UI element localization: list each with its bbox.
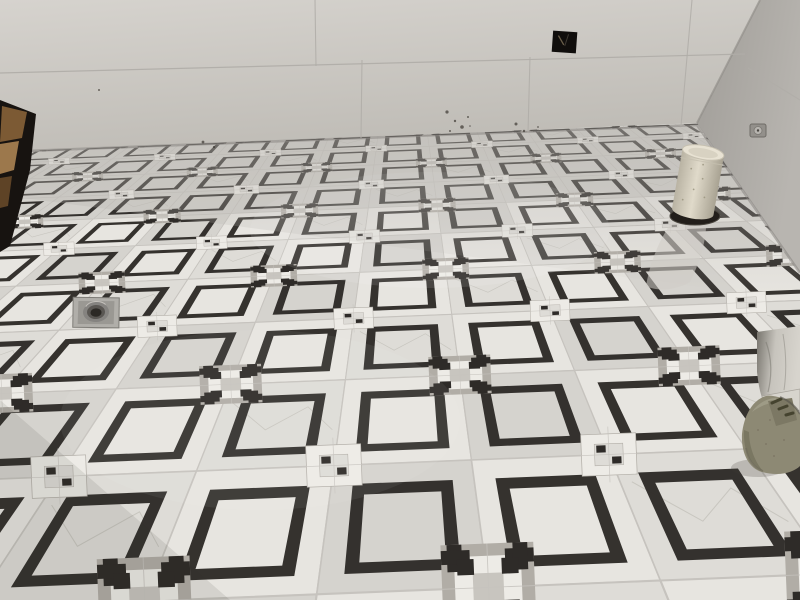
suede-speck [765, 443, 767, 445]
wall-splatter-speck [537, 126, 539, 128]
wall-splatter-speck [515, 123, 518, 126]
boot-lace [786, 413, 793, 415]
suede-speck [769, 419, 771, 421]
tile-corner-motif [657, 345, 720, 386]
wall-splatter-speck [467, 116, 469, 118]
wall-splatter-speck [98, 89, 100, 91]
suede-speck [773, 455, 775, 457]
tile-corner-motif [250, 264, 297, 288]
suede-speck [757, 429, 759, 431]
floor-glare [60, 330, 460, 510]
wall-junction-box-hole [551, 30, 577, 54]
bathroom-photo [0, 0, 800, 600]
wall-splatter-speck [445, 110, 448, 113]
wall-splatter-speck [523, 130, 525, 132]
wall-splatter-speck [469, 125, 471, 127]
wall-splatter-speck [460, 125, 464, 129]
wall-splatter-speck [213, 146, 215, 148]
wall-outlet-box [750, 124, 766, 137]
suede-speck [783, 439, 785, 441]
wall-splatter-speck [202, 141, 205, 144]
tile-corner-motif [78, 271, 125, 295]
floor-drain [71, 295, 121, 330]
tile-corner-motif [440, 542, 536, 600]
wall-splatter-speck [454, 120, 456, 122]
wall-splatter-speck [449, 130, 451, 132]
bathroom-scene [0, 0, 800, 600]
tile-corner-motif [784, 528, 800, 600]
